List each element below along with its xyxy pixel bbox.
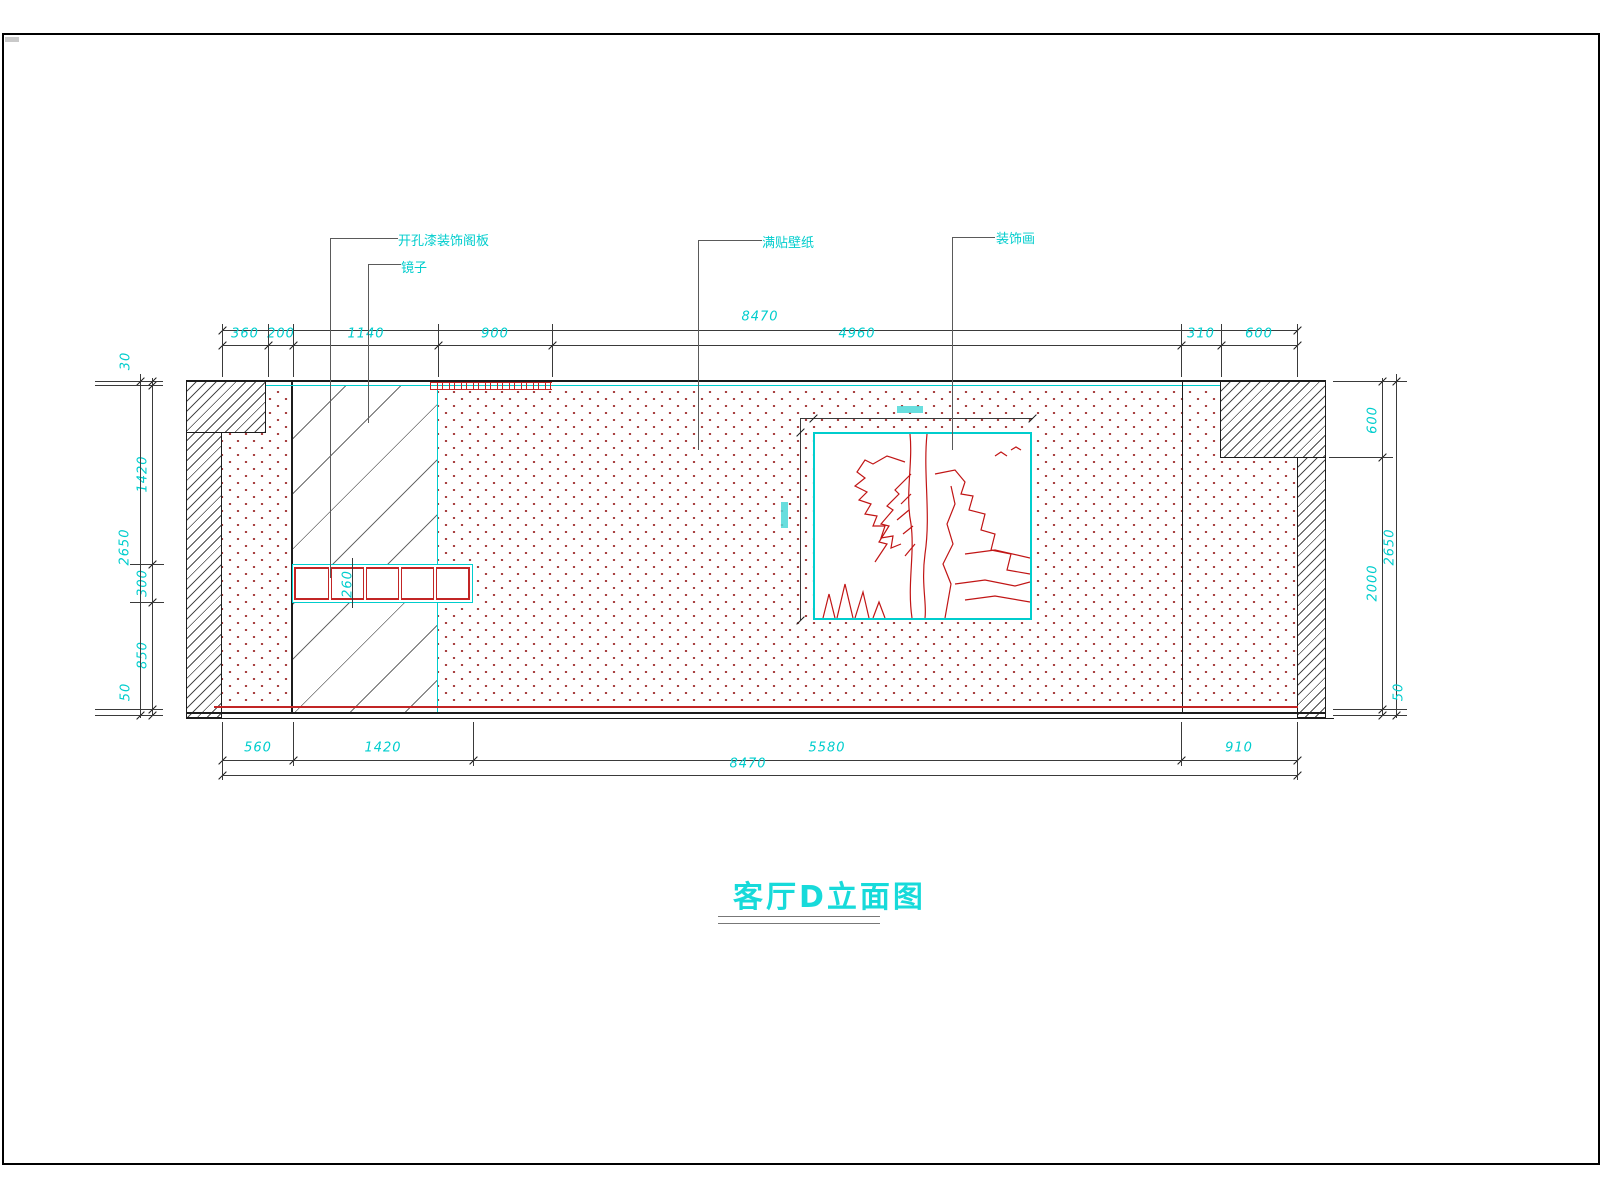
dim-label: 50 [119,683,134,702]
dim-label: 910 [1225,741,1253,756]
mirror-right-edge [437,385,438,713]
shelf-divider [433,567,437,600]
dim-label: 300 [136,569,151,597]
dim-label: 200 [267,327,295,342]
leader-line [698,240,699,450]
dim-label: 310 [1187,327,1215,342]
dim-label: 2650 [1383,528,1398,565]
shelf-divider [398,567,402,600]
wallpaper-end-line [1182,381,1183,713]
extension-line [222,722,223,780]
shelf-body [294,567,470,600]
extension-line [1329,457,1393,458]
dim-label: 5580 [808,741,845,756]
dim-line [140,374,141,718]
leader-line [368,264,401,265]
dim-label: 850 [136,641,151,669]
dim-label: 2000 [1366,564,1381,601]
extension-line [268,324,269,377]
painting-dim-label-left [781,502,788,528]
dim-label: 600 [1366,406,1381,434]
right-wall-section [1297,457,1326,718]
dim-label: 360 [231,327,259,342]
leader-line [368,264,369,423]
extension-line [352,558,353,608]
dim-label: 260 [341,570,356,598]
extension-line [95,381,163,382]
extension-line [1333,709,1407,710]
label-painting: 装饰画 [996,228,1035,247]
extension-line [222,324,223,377]
dim-label: 1420 [364,741,401,756]
extension-line [438,324,439,377]
corner-mark [5,37,19,42]
cad-canvas: 开孔漆装饰阁板 镜子 满贴壁纸 装饰画 84703602001140900496… [0,0,1600,1200]
extension-line [800,418,1033,419]
painting-art [815,434,1030,618]
extension-line [552,324,553,377]
label-wallpaper: 满贴壁纸 [762,232,814,251]
wall-top-line [186,380,1326,382]
perforated-strip [430,382,552,390]
leader-line [952,237,953,450]
dim-label: 600 [1245,327,1273,342]
extension-line [293,324,294,377]
extension-line [1181,722,1182,766]
extension-line [1181,324,1182,377]
dim-label: 900 [481,327,509,342]
dim-line [152,378,153,715]
extension-line [1333,381,1407,382]
dim-label: 30 [119,352,134,371]
extension-line [1297,722,1298,780]
drawing-title: 客厅D立面图 [733,872,926,916]
extension-line [130,564,164,565]
left-wall-soffit [186,381,266,433]
leader-line [330,238,331,578]
dim-label: 1140 [347,327,384,342]
right-wall-soffit [1220,381,1326,458]
floor-line-2 [186,718,1334,719]
extension-line [130,602,164,603]
extension-line [95,709,163,710]
extension-line [1221,324,1222,377]
dim-line [222,345,1297,346]
dim-label: 8470 [741,310,778,325]
leader-line [698,240,762,241]
title-underline [718,916,880,917]
dim-label: 8470 [729,757,766,772]
dim-line [222,775,1297,776]
extension-line [473,722,474,766]
extension-line [1297,324,1298,377]
leader-line [952,237,995,238]
dim-label: 560 [244,741,272,756]
dim-label: 50 [1392,683,1407,702]
label-panel: 开孔漆装饰阁板 [398,230,489,249]
extension-line [293,722,294,766]
ceiling-finish-line [265,385,1220,386]
mirror-area [292,385,437,713]
leader-line [330,238,398,239]
shelf-divider [363,567,367,600]
title-underline [718,923,880,924]
painting-frame [813,432,1032,620]
dim-label: 4960 [838,327,875,342]
extension-line [1333,715,1407,716]
floor-line [186,712,1326,714]
painting-dim-label-top [897,406,923,413]
dim-label: 2650 [118,528,133,565]
label-mirror: 镜子 [401,257,427,276]
extension-line [800,418,801,620]
mirror-left-edge [291,381,293,713]
extension-line [95,715,163,716]
dim-label: 1420 [136,455,151,492]
skirting-line [214,706,1298,708]
extension-line [95,385,163,386]
